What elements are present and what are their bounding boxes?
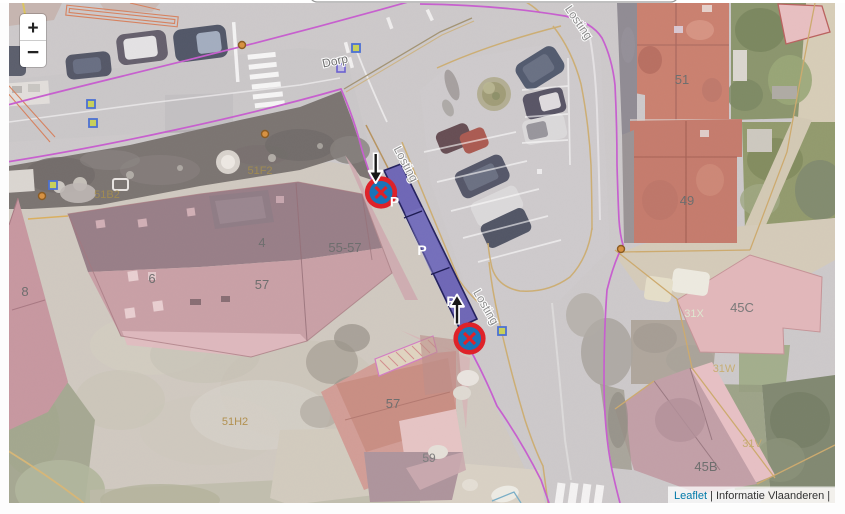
svg-text:−: − (27, 41, 39, 64)
svg-text:+: + (27, 18, 38, 39)
svg-text:Leaflet | Informatie Vlaandere: Leaflet | Informatie Vlaanderen | (674, 490, 830, 502)
